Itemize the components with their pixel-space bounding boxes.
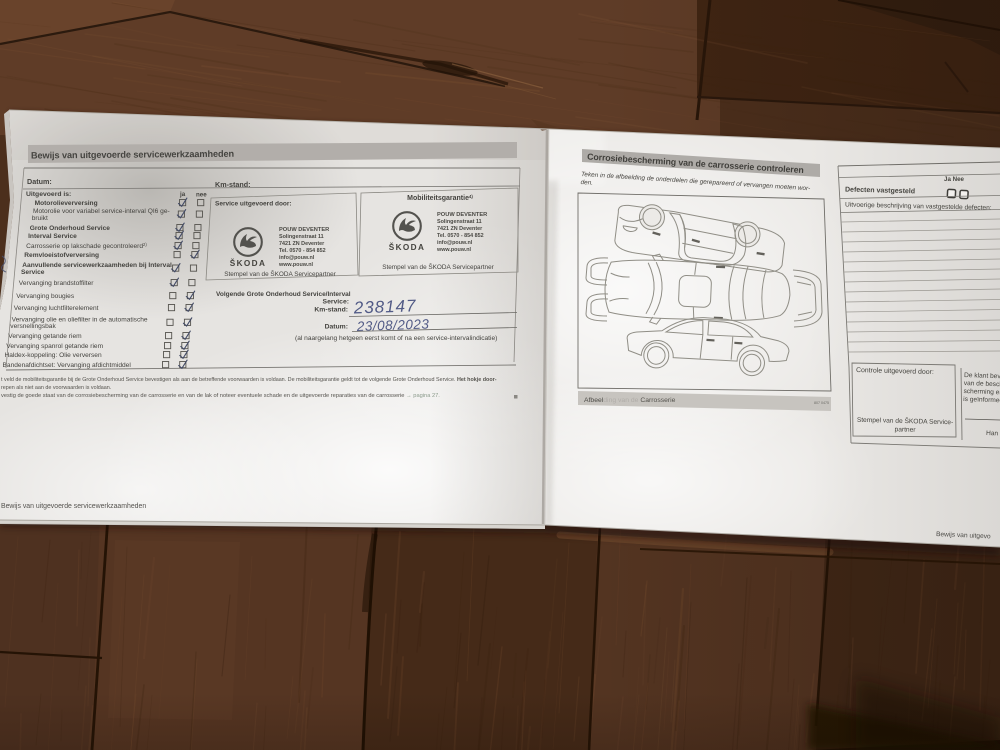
svg-text:info@pouw.nl: info@pouw.nl <box>279 255 315 261</box>
svg-text:ŠKODA: ŠKODA <box>230 257 267 268</box>
svg-text:versnellingsbak: versnellingsbak <box>10 323 56 330</box>
svg-text:Aanvullende servicewerkzaamhed: Aanvullende servicewerkzaamheden bij Int… <box>22 262 172 269</box>
svg-text:info@pouw.nl: info@pouw.nl <box>437 240 473 246</box>
svg-text:Bewijs van uitgevoerde service: Bewijs van uitgevoerde servicewerkzaamhe… <box>31 149 235 161</box>
svg-text:t veld de mobiliteitsgarantie: t veld de mobiliteitsgarantie bij de Gro… <box>1 377 497 383</box>
svg-text:www.pouw.nl: www.pouw.nl <box>278 262 314 268</box>
svg-text:Carrosserie op lakschade gecon: Carrosserie op lakschade gecontroleerd2) <box>26 242 147 250</box>
svg-text:807 0475: 807 0475 <box>814 401 829 405</box>
svg-text:Mobiliteitsgarantie4): Mobiliteitsgarantie4) <box>407 194 473 202</box>
svg-text:scherming en: scherming en <box>963 388 1000 396</box>
svg-text:ja: ja <box>179 191 186 198</box>
svg-text:partner: partner <box>894 426 916 434</box>
svg-text:Haldex-koppeling: Olie ververs: Haldex-koppeling: Olie verversen <box>5 352 102 359</box>
svg-text:Vervanging getande riem: Vervanging getande riem <box>8 333 82 340</box>
svg-text:Vervanging spanrol getande rie: Vervanging spanrol getande riem <box>6 343 103 350</box>
svg-text:Han: Han <box>986 430 999 437</box>
svg-text:Volgende Grote Onderhoud Servi: Volgende Grote Onderhoud Service/Interva… <box>216 291 351 298</box>
svg-text:Datum:: Datum: <box>27 177 52 186</box>
svg-text:Service:: Service: <box>323 299 349 306</box>
svg-text:Stempel van de ŠKODA Servicepa: Stempel van de ŠKODA Servicepartner <box>382 262 494 271</box>
svg-text:vestig de goede staat van de c: vestig de goede staat van de corrosiebes… <box>1 393 440 399</box>
svg-text:repen als niet aan de voorwaar: repen als niet aan de voorwaarden is vol… <box>1 385 111 391</box>
svg-text:nee: nee <box>196 192 207 199</box>
svg-text:7421 ZN Deventer: 7421 ZN Deventer <box>279 241 325 247</box>
svg-text:Uitgevoerd is:: Uitgevoerd is: <box>26 191 71 198</box>
svg-text:Remvloeistofverversing: Remvloeistofverversing <box>24 252 99 259</box>
svg-text:Grote Onderhoud Service: Grote Onderhoud Service <box>30 225 111 232</box>
svg-text:Stempel van de ŠKODA Servicepa: Stempel van de ŠKODA Servicepartner <box>224 269 336 278</box>
svg-text:Tel. 0570 - 854 852: Tel. 0570 - 854 852 <box>437 233 484 239</box>
svg-text:den.: den. <box>580 179 593 187</box>
svg-text:Datum:: Datum: <box>325 324 348 331</box>
svg-text:Motorolieverversing: Motorolieverversing <box>35 200 98 207</box>
svg-text:Motorolie voor variabel servic: Motorolie voor variabel service-interval… <box>33 208 170 215</box>
svg-text:Service: Service <box>21 269 45 276</box>
svg-text:238147: 238147 <box>352 296 416 317</box>
svg-text:Ja Nee: Ja Nee <box>944 176 965 183</box>
svg-text:bruikt: bruikt <box>32 215 48 222</box>
svg-text:Vervanging luchtfilterelement: Vervanging luchtfilterelement <box>14 305 99 312</box>
svg-text:ŠKODA: ŠKODA <box>389 241 426 252</box>
svg-text:www.pouw.nl: www.pouw.nl <box>436 247 472 253</box>
svg-text:Interval Service: Interval Service <box>28 233 77 240</box>
svg-text:Afbeelding van de Carrosserie: Afbeelding van de Carrosserie <box>584 397 676 404</box>
svg-text:Solingenstraat 11: Solingenstraat 11 <box>437 219 482 225</box>
svg-text:Vervanging brandstoffilter: Vervanging brandstoffilter <box>19 280 94 287</box>
svg-text:Solingenstraat 11: Solingenstraat 11 <box>279 234 324 240</box>
svg-text:POUW DEVENTER: POUW DEVENTER <box>279 227 329 233</box>
svg-text:Service uitgevoerd door:: Service uitgevoerd door: <box>215 201 292 208</box>
svg-text:Km-stand:: Km-stand: <box>314 307 348 314</box>
svg-text:Vervanging bougies: Vervanging bougies <box>16 293 75 300</box>
svg-text:7421 ZN Deventer: 7421 ZN Deventer <box>437 226 483 232</box>
svg-text:Bewijs van uitgevoerde service: Bewijs van uitgevoerde servicewerkzaamhe… <box>1 503 146 510</box>
svg-text:Bandenafdichtset: Vervanging a: Bandenafdichtset: Vervanging afdichtmidd… <box>3 362 132 369</box>
svg-text:(al naargelang hetgeen eerst k: (al naargelang hetgeen eerst komt of na … <box>295 335 497 342</box>
svg-text:POUW DEVENTER: POUW DEVENTER <box>437 212 487 218</box>
svg-text:Tel. 0570 - 854 852: Tel. 0570 - 854 852 <box>279 248 326 254</box>
